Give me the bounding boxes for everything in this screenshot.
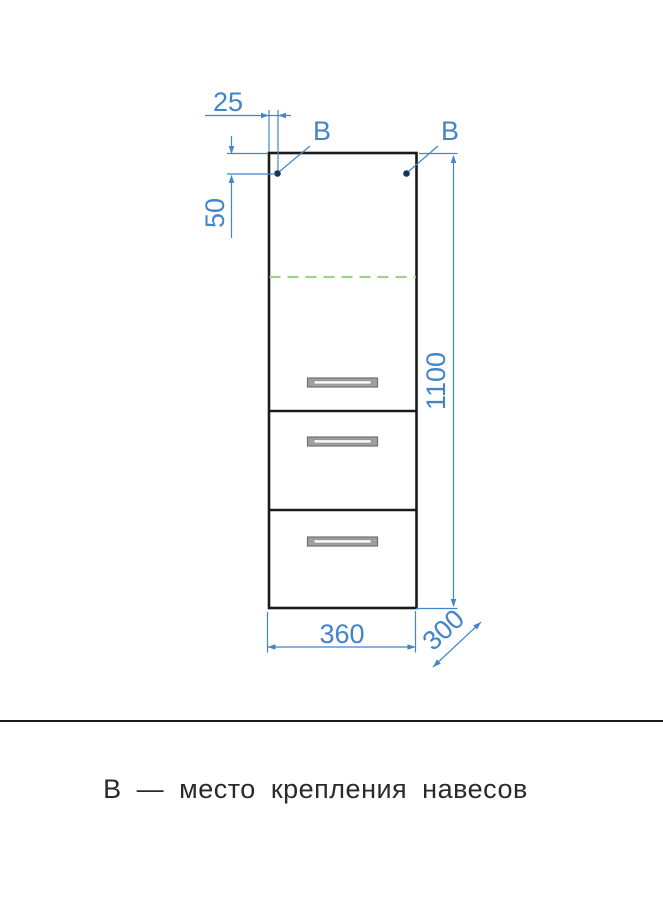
leader-line: [280, 146, 311, 172]
mount-label-right: В: [441, 116, 459, 146]
dim-text-360: 360: [319, 619, 364, 649]
dim-text-1100: 1100: [421, 352, 451, 410]
dim-text-300: 300: [417, 604, 470, 657]
dim-text-50: 50: [200, 198, 230, 228]
cabinet-technical-drawing: 25 50 В В 1100: [0, 0, 663, 900]
dim-mount-offset-x: 25: [205, 87, 291, 171]
drawer-handle-bottom: [308, 537, 378, 546]
leader-line: [409, 146, 439, 172]
dim-height: 1100: [416, 154, 458, 609]
arrowhead-up: [229, 175, 235, 183]
mount-label-left-group: В: [280, 116, 332, 172]
arrowhead-right: [408, 644, 416, 650]
cabinet-body: [269, 153, 417, 608]
arrowhead-down: [229, 146, 235, 154]
drawing-caption: В — место крепления навесов: [0, 774, 631, 805]
arrowhead-left: [268, 644, 276, 650]
dim-depth: 300: [417, 604, 481, 667]
caption-divider: [0, 720, 663, 722]
dim-width: 360: [268, 611, 416, 653]
arrowhead-left: [278, 113, 286, 119]
arrowhead-up: [451, 155, 457, 163]
arrowhead-right: [261, 113, 269, 119]
dim-text-25: 25: [213, 87, 243, 117]
mount-label-left: В: [313, 116, 331, 146]
cabinet-drawing-page: 25 50 В В 1100: [0, 0, 663, 900]
drawer-handle-middle: [308, 437, 378, 446]
door-handle: [308, 378, 378, 387]
dim-mount-offset-y: 50: [200, 136, 276, 238]
